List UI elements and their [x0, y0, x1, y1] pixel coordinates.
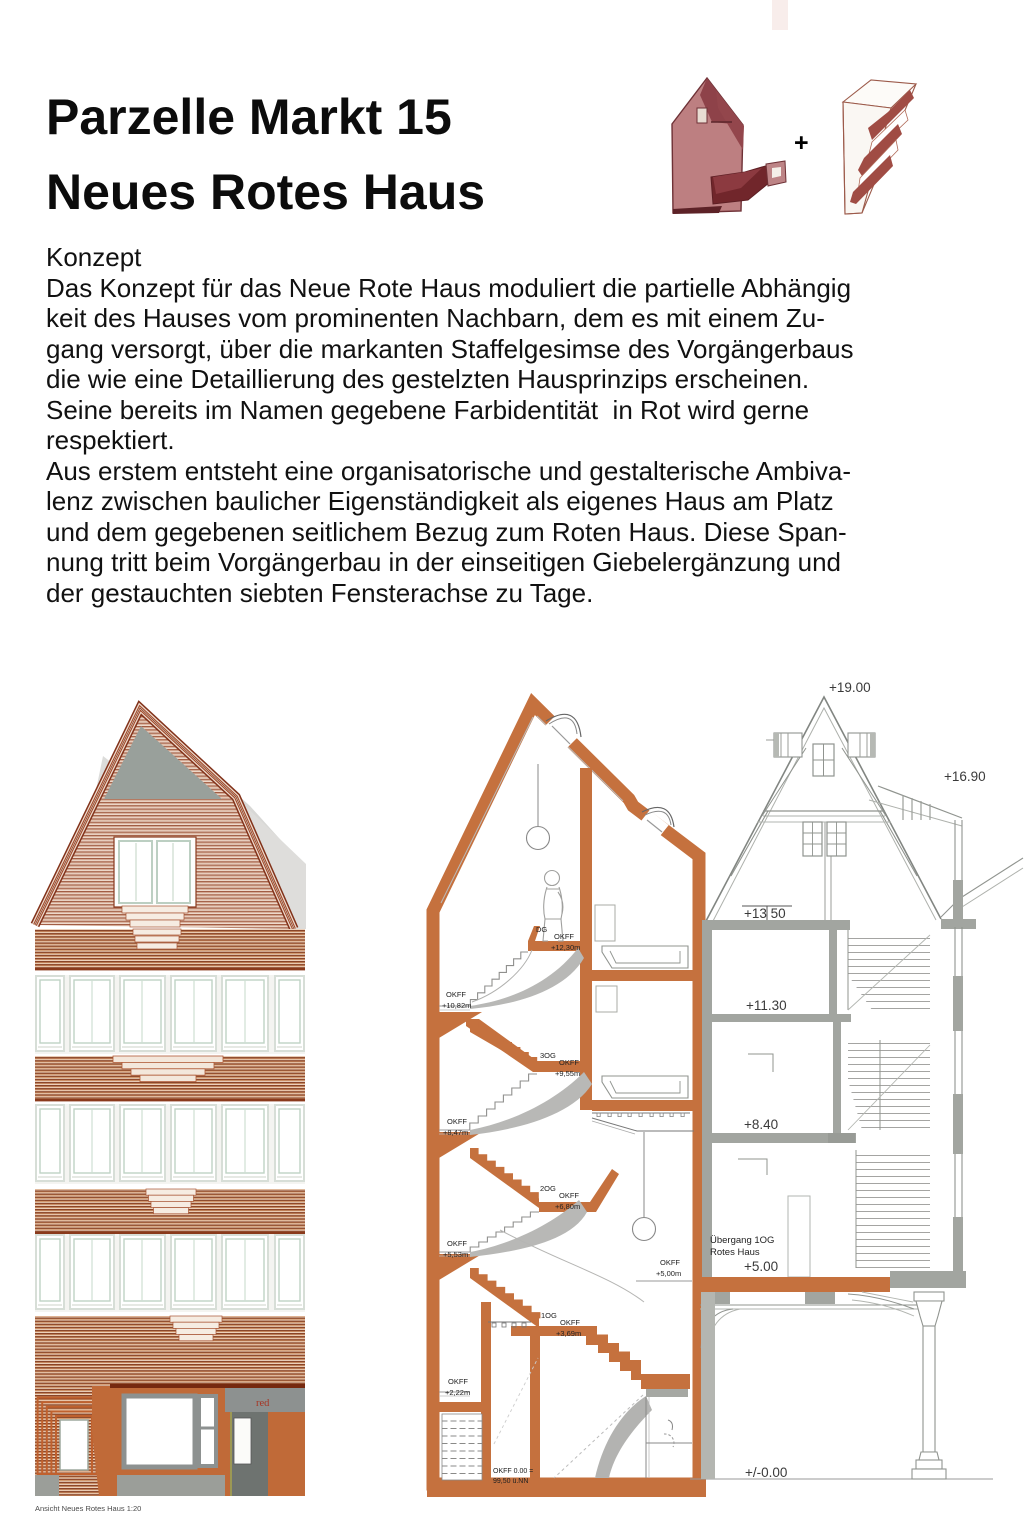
svg-text:3OG: 3OG [540, 1051, 556, 1060]
svg-text:1OG: 1OG [541, 1311, 557, 1320]
svg-text:+19.00: +19.00 [829, 680, 871, 695]
svg-text:+5.00: +5.00 [744, 1259, 778, 1274]
svg-text:DG: DG [536, 925, 547, 934]
svg-text:+13 50: +13 50 [744, 906, 786, 921]
svg-text:+3,69m: +3,69m [556, 1329, 581, 1338]
svg-text:OKFF: OKFF [559, 1058, 579, 1067]
svg-text:+2,22m: +2,22m [445, 1388, 470, 1397]
svg-text:OKFF: OKFF [447, 1117, 467, 1126]
svg-text:99,50 ü.NN: 99,50 ü.NN [493, 1478, 528, 1485]
svg-text:+6,80m: +6,80m [555, 1202, 580, 1211]
svg-text:OKFF: OKFF [660, 1258, 680, 1267]
svg-text:OKFF: OKFF [448, 1377, 468, 1386]
svg-text:+10,82m: +10,82m [442, 1001, 471, 1010]
svg-text:+11.30: +11.30 [746, 998, 787, 1013]
svg-text:OKFF: OKFF [446, 990, 466, 999]
svg-text:+/-0.00: +/-0.00 [745, 1465, 787, 1480]
svg-text:+8,47m: +8,47m [443, 1128, 468, 1137]
svg-text:+5,00m: +5,00m [656, 1269, 681, 1278]
svg-text:red: red [256, 1398, 270, 1409]
svg-text:Ansicht Neues Rotes Haus 1:20: Ansicht Neues Rotes Haus 1:20 [35, 1504, 141, 1513]
svg-text:+16.90: +16.90 [944, 769, 986, 784]
svg-text:Rotes Haus: Rotes Haus [710, 1247, 760, 1258]
svg-text:OKFF 0.00 =: OKFF 0.00 = [493, 1468, 533, 1475]
svg-text:OKFF: OKFF [560, 1318, 580, 1327]
svg-text:+: + [794, 129, 809, 157]
svg-text:+8.40: +8.40 [744, 1117, 778, 1132]
svg-text:+12,30m: +12,30m [551, 943, 580, 952]
svg-text:OKFF: OKFF [554, 932, 574, 941]
svg-text:+9,55m: +9,55m [555, 1069, 580, 1078]
svg-text:+5,53m: +5,53m [443, 1250, 468, 1259]
svg-text:OKFF: OKFF [447, 1239, 467, 1248]
svg-text:Übergang 1OG: Übergang 1OG [710, 1235, 774, 1246]
svg-text:2OG: 2OG [540, 1184, 556, 1193]
svg-text:OKFF: OKFF [559, 1191, 579, 1200]
